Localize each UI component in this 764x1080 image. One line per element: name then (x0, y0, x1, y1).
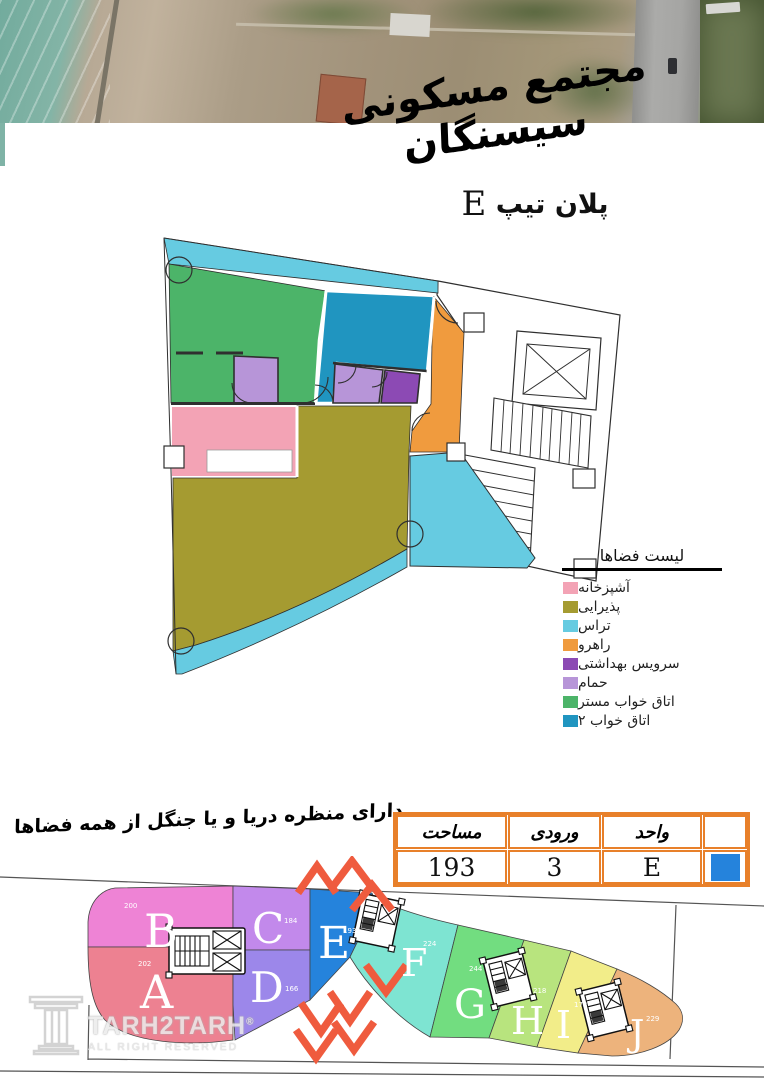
legend-swatch-kitchen (563, 582, 578, 594)
legend-label-wc: سرویس بهداشتی (578, 656, 680, 672)
legend-label-kitchen: آشپزخانه (578, 580, 630, 596)
unit-area-F: 224 (423, 940, 437, 948)
legend: لیست فضاها آشپزخانه پذیرایی تراس راهرو س… (556, 546, 728, 730)
registered-icon: ® (246, 1017, 254, 1028)
unit-area-H: 218 (533, 987, 546, 995)
car (668, 58, 677, 74)
legend-item: آشپزخانه (556, 578, 728, 597)
unit-area-J: 229 (646, 1015, 659, 1023)
legend-item: اتاق خواب ۲ (556, 711, 728, 730)
roadside-trees (700, 0, 764, 123)
plan-sheet: مجتمع مسکونی سیسنگان پلان تیپ E (0, 0, 764, 1080)
col-header-swatch (703, 815, 747, 849)
plan-type-letter: E (461, 184, 486, 224)
col-header-unit: واحد (602, 815, 702, 849)
slogan-text: دارای منظره دریا و یا جنگل از همه فضاها (98, 799, 403, 834)
unit-letter-B: B (144, 904, 178, 958)
unit-color-swatch (711, 854, 740, 881)
legend-label-bedroom2: اتاق خواب ۲ (578, 713, 650, 729)
legend-item: راهرو (556, 635, 728, 654)
cell-area-value: 193 (396, 850, 507, 884)
cell-unit-value: E (602, 850, 702, 884)
legend-swatch-wc (563, 658, 578, 670)
cell-unit-swatch (703, 850, 747, 884)
legend-underline (562, 568, 722, 571)
unit-letter-H: H (511, 999, 544, 1043)
legend-label-terrace: تراس (578, 618, 611, 634)
unit-letter-C: C (252, 904, 284, 953)
unit-area-G: 244 (469, 965, 483, 973)
stair-core-main (166, 924, 245, 978)
unit-area-I: 173 (574, 1001, 587, 1009)
col-header-entrance: ورودی (508, 815, 601, 849)
shed-roof (389, 13, 430, 37)
legend-item: اتاق خواب مستر (556, 692, 728, 711)
legend-swatch-bedroom2 (563, 715, 578, 727)
sea-foam (0, 0, 110, 123)
watermark-text: TARH2TARH® ALL RIGHT RESERVED (88, 1012, 254, 1053)
watermark-brand: TARH2TARH® (88, 1012, 254, 1041)
unit-area-D: 166 (285, 985, 299, 993)
unit-letter-G: G (454, 982, 486, 1028)
col-header-area: مساحت (396, 815, 507, 849)
legend-label-master: اتاق خواب مستر (578, 694, 675, 710)
kitchen-counter (207, 450, 292, 472)
plan-type-subtitle: پلان تیپ E (430, 184, 640, 224)
unit-area-A: 202 (138, 960, 151, 968)
elevator-shaft (512, 331, 601, 410)
unit-area-B: 200 (124, 902, 137, 910)
legend-title: لیست فضاها (556, 546, 728, 565)
legend-swatch-living (563, 601, 578, 613)
unit-letter-E: E (318, 918, 350, 969)
legend-label-hallway: راهرو (578, 637, 611, 653)
cell-entrance-value: 3 (508, 850, 601, 884)
unit-area-C: 184 (284, 917, 298, 925)
aerial-photo-edge (0, 123, 5, 166)
legend-swatch-hallway (563, 639, 578, 651)
room-bath-1 (234, 356, 278, 403)
watermark: TARH2TARH® ALL RIGHT RESERVED (28, 994, 254, 1056)
unit-letter-I: I (556, 1003, 571, 1047)
legend-label-bath: حمام (578, 675, 608, 691)
legend-item: سرویس بهداشتی (556, 654, 728, 673)
legend-swatch-master (563, 696, 578, 708)
legend-item: حمام (556, 673, 728, 692)
legend-item: تراس (556, 616, 728, 635)
legend-swatch-terrace (563, 620, 578, 632)
plan-type-label: پلان تیپ (496, 189, 609, 220)
room-bath-2 (333, 364, 383, 403)
spec-table: مساحت ورودی واحد 193 3 E (393, 812, 750, 887)
unit-letter-D: D (250, 963, 284, 1012)
legend-swatch-bath (563, 677, 578, 689)
legend-item: پذیرایی (556, 597, 728, 616)
legend-label-living: پذیرایی (578, 599, 620, 615)
watermark-rights: ALL RIGHT RESERVED (88, 1041, 254, 1053)
unit-area-E: 193 (343, 927, 356, 935)
pillar-logo-icon (28, 994, 84, 1056)
stair-corner-post (573, 469, 595, 488)
